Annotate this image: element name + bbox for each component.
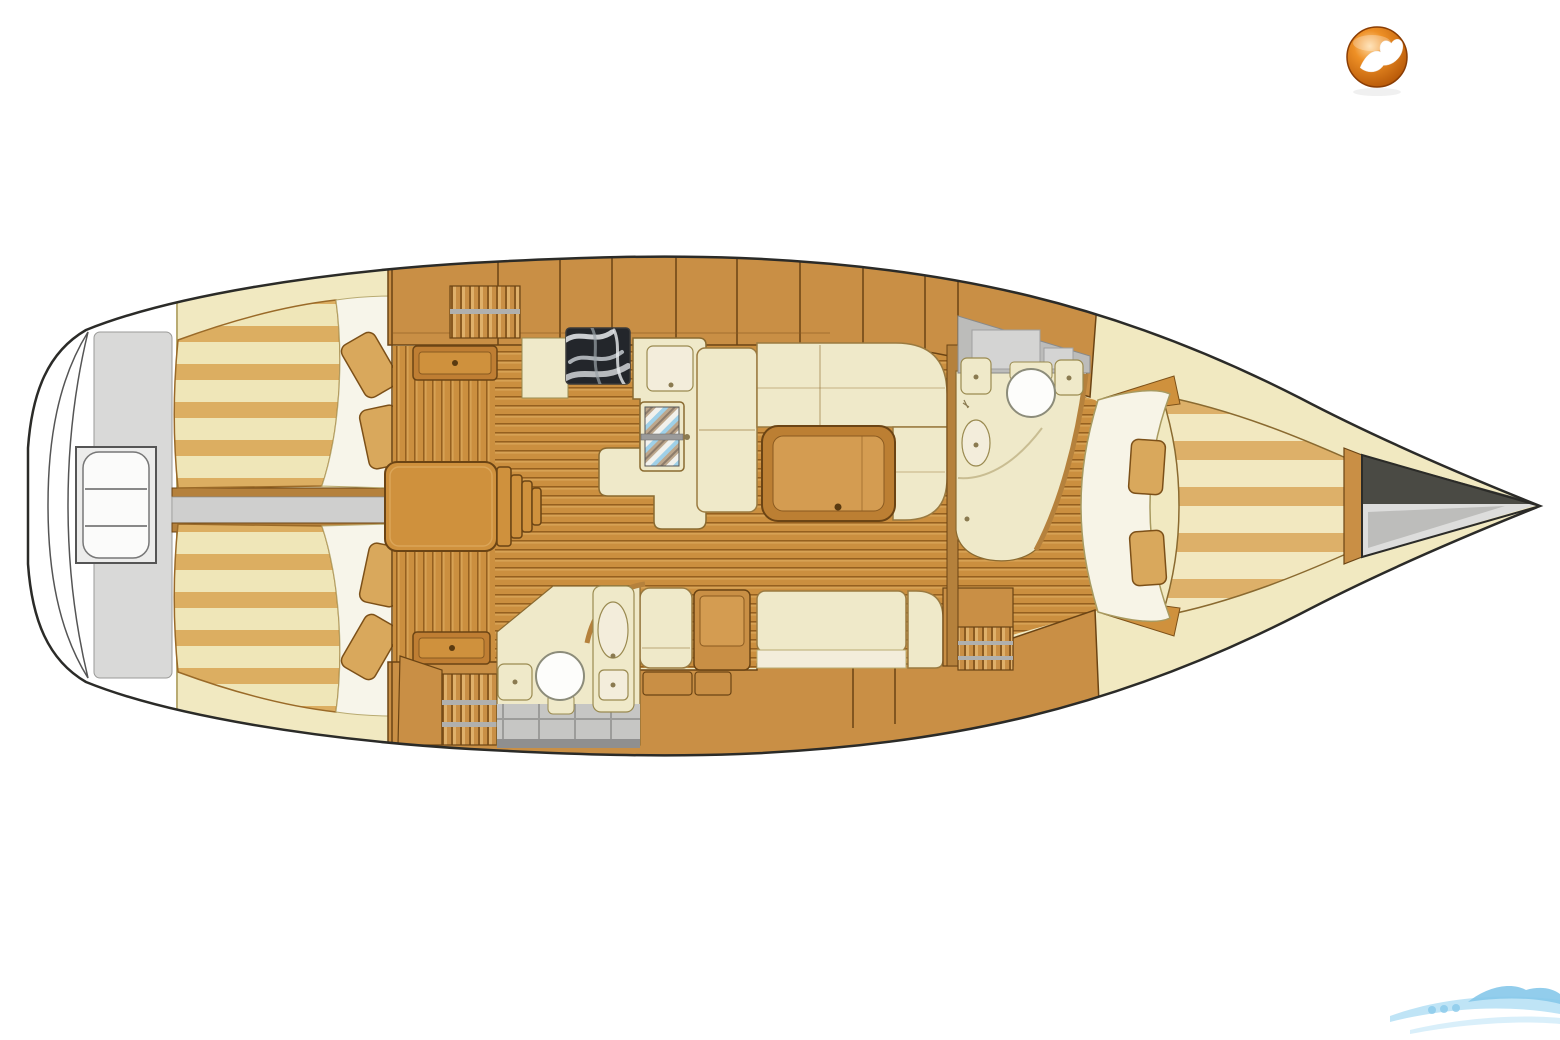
boat-floor-plan-page [0,0,1560,1040]
aft-head-sink [498,664,532,700]
galley-stove [640,402,690,471]
hanging-locker-starboard [450,286,520,338]
fwd-head-toilet [1007,362,1055,417]
louver-vent [958,627,1013,670]
boat-floor-plan-image [0,0,1560,1040]
nav-seat [640,588,692,668]
marketplace-logo [1347,27,1407,96]
companionway-steps [385,462,541,551]
bow-bulkhead [1344,448,1362,564]
nav-drawer-2 [695,672,731,695]
hanging-locker-port [442,674,497,745]
fwd-head-sink-left [961,358,991,394]
aft-head-vanity [593,586,634,712]
u-settee-right-arm [893,427,947,520]
cabinet-wedge-port [398,656,442,745]
fwd-head-basin [962,420,990,466]
nav-drawer-1 [643,672,692,695]
galley-worktop-marble [566,328,630,384]
helm-seat [76,447,156,563]
salon-table [762,426,895,521]
fwd-head-cabinet-right [1055,360,1083,395]
u-settee-top-band [757,343,947,427]
marketplace-watermark [1390,986,1560,1034]
galley-counter-left [522,338,568,398]
drawer-unit-starboard [413,346,497,380]
port-settee [757,591,943,668]
drawer-unit-port [413,632,490,664]
